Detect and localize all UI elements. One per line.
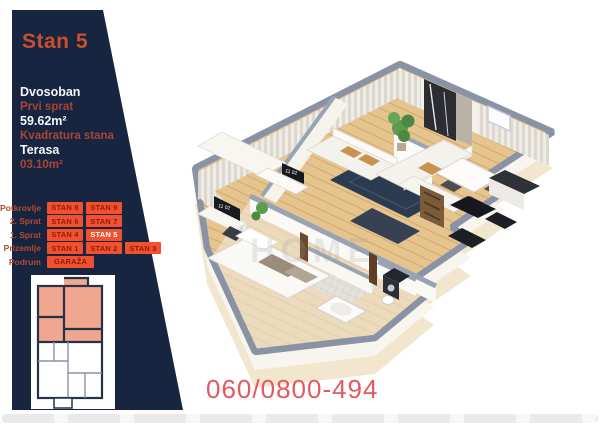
floor-row: 2. Sprat STAN 6 STAN 7 xyxy=(0,215,161,229)
sidebar: Stan 5 Dvosoban Prvi sprat 59.62m² Kvadr… xyxy=(0,0,200,424)
phone-number: 060/0800-494 xyxy=(206,374,378,405)
thumbnail-entry-tab xyxy=(54,398,72,408)
terrace-label: Terasa xyxy=(20,143,114,158)
unit-button-stan-2[interactable]: STAN 2 xyxy=(86,242,122,254)
unit-button-stan-4[interactable]: STAN 4 xyxy=(47,229,83,241)
apartment-type: Dvosoban xyxy=(20,85,114,100)
apartment-title: Stan 5 xyxy=(22,30,88,54)
unit-button-stan-1[interactable]: STAN 1 xyxy=(47,242,83,254)
thumbnail-highlight xyxy=(38,278,102,342)
unit-button-garaza[interactable]: GARAŽA xyxy=(47,256,94,268)
watermark: HOME xyxy=(250,232,376,270)
floor-row: Podrum GARAŽA xyxy=(0,255,161,269)
apartment-area: 59.62m² xyxy=(20,114,114,129)
floor-navigation: Potkrovlje STAN 8 STAN 9 2. Sprat STAN 6… xyxy=(0,201,161,269)
unit-button-stan-9[interactable]: STAN 9 xyxy=(86,202,122,214)
floorplan-thumbnail xyxy=(28,273,118,413)
page: 11 02 11 02 xyxy=(0,0,600,424)
apartment-floor: Prvi sprat xyxy=(20,100,114,115)
unit-button-stan-6[interactable]: STAN 6 xyxy=(47,215,83,227)
bottom-strip xyxy=(2,414,598,423)
area-label: Kvadratura stana xyxy=(20,129,114,144)
floor-label: Podrum xyxy=(0,257,44,267)
unit-button-stan-3[interactable]: STAN 3 xyxy=(125,242,161,254)
floor-row: Potkrovlje STAN 8 STAN 9 xyxy=(0,201,161,215)
floor-label: 2. Sprat xyxy=(0,216,44,226)
floor-row: Prizemlje STAN 1 STAN 2 STAN 3 xyxy=(0,242,161,256)
floor-label: 1. Sprat xyxy=(0,230,44,240)
apartment-details: Dvosoban Prvi sprat 59.62m² Kvadratura s… xyxy=(20,85,114,173)
terrace-area: 03.10m² xyxy=(20,158,114,173)
floor-row: 1. Sprat STAN 4 STAN 5 xyxy=(0,228,161,242)
unit-button-stan-8[interactable]: STAN 8 xyxy=(47,202,83,214)
unit-button-stan-7[interactable]: STAN 7 xyxy=(86,215,122,227)
floor-label: Potkrovlje xyxy=(0,203,44,213)
unit-button-stan-5-active[interactable]: STAN 5 xyxy=(86,229,122,241)
floor-label: Prizemlje xyxy=(0,243,44,253)
